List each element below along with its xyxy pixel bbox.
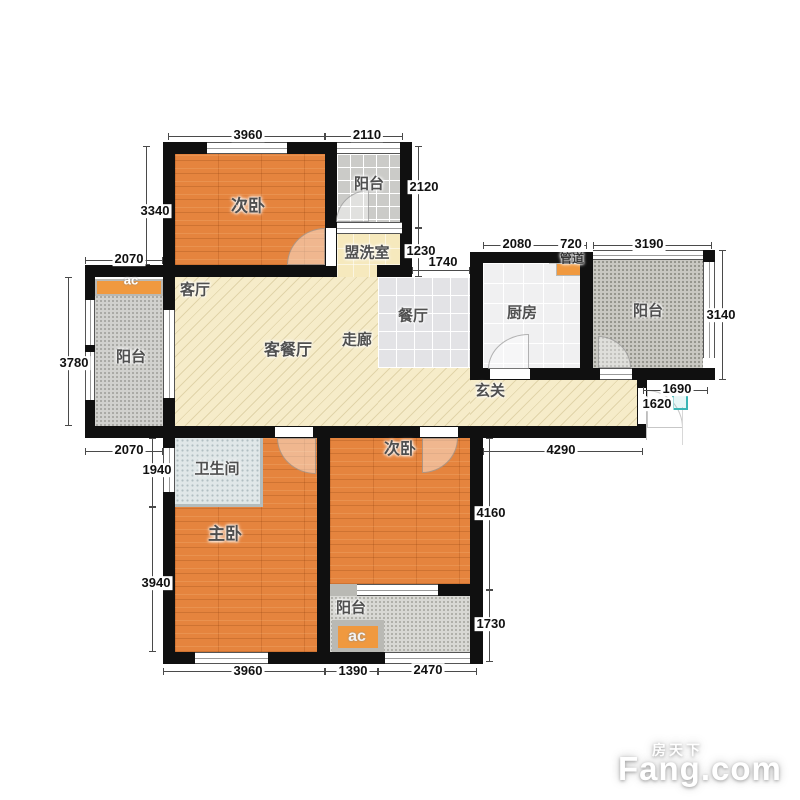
label-balcony-bottom: 阳台	[336, 597, 366, 618]
label-kitchen: 厨房	[507, 302, 537, 323]
label-living: 客厅	[180, 279, 210, 300]
dim-line	[412, 270, 470, 271]
window	[357, 584, 438, 596]
floor-plan: 3960 2110 3340 2120 1230 1740 2070 3780 …	[0, 0, 800, 800]
window	[207, 142, 287, 154]
extension-line	[682, 407, 683, 445]
dim-balcony-top-width: 2110	[351, 128, 383, 142]
balcony-sliding-door	[163, 310, 175, 398]
dim-entry-width: 1690	[661, 382, 694, 396]
label-dining: 餐厅	[398, 305, 428, 326]
dim-ac-bay-width: 1390	[337, 664, 370, 678]
dim-balcony-top-height: 2120	[408, 180, 441, 194]
label-master: 主卧	[208, 520, 242, 545]
wall	[703, 250, 715, 262]
wall	[317, 438, 330, 652]
dim-balcony-bottom-height: 1730	[475, 617, 508, 631]
dim-balcony-right-width: 3190	[633, 237, 666, 251]
master-door-opening	[275, 427, 313, 437]
dim-balcony-left-height: 3780	[58, 356, 91, 370]
label-ac-top: ac	[124, 273, 138, 288]
label-ac-bottom: ac	[348, 628, 366, 646]
entry-door-marker	[672, 394, 688, 410]
dim-bed2-top-width: 3960	[232, 128, 265, 142]
dim-kitchen-width: 2080	[501, 237, 534, 251]
label-bedroom2-bottom: 次卧	[384, 435, 416, 459]
window	[337, 142, 400, 154]
watermark-brand-en: Fang.com	[618, 750, 782, 788]
bedroom2-bottom-door-opening	[420, 427, 458, 437]
dim-bed2-bottom-height: 4160	[475, 506, 508, 520]
wall	[163, 265, 337, 277]
dim-bathroom-height: 1940	[141, 463, 174, 477]
label-living-dining: 客餐厅	[264, 336, 312, 360]
kitchen-door-opening	[490, 369, 530, 379]
wall	[580, 252, 593, 380]
label-bathroom: 卫生间	[194, 458, 239, 479]
dim-left-bottom-width: 2070	[113, 443, 146, 457]
dim-hall-width: 4290	[545, 443, 578, 457]
window	[337, 222, 402, 234]
label-washroom: 盟洗室	[344, 242, 389, 263]
dim-dining-open-width: 1740	[427, 255, 460, 269]
wall	[85, 426, 175, 438]
dim-balcony-bottom-width: 2470	[412, 663, 445, 677]
label-duct: 管道	[560, 250, 584, 267]
label-bedroom2-top: 次卧	[231, 192, 265, 217]
label-entry: 玄关	[475, 380, 505, 401]
wall	[470, 252, 483, 380]
label-balcony-left: 阳台	[116, 346, 146, 367]
wall	[438, 584, 470, 596]
label-balcony-right: 阳台	[633, 300, 663, 321]
dim-balcony-right-height: 3140	[705, 308, 738, 322]
dim-master-width: 3960	[232, 664, 265, 678]
window	[85, 300, 95, 345]
dim-entry-height: 1620	[641, 397, 674, 411]
window	[593, 250, 703, 260]
wall	[377, 265, 403, 277]
label-corridor: 走廊	[342, 329, 372, 350]
dim-bed2-top-height: 3340	[139, 204, 172, 218]
dim-line	[68, 277, 69, 426]
dim-master-height: 3940	[140, 576, 173, 590]
dim-left-top-width: 2070	[113, 252, 146, 266]
balcony-right-door-opening	[600, 368, 632, 380]
wall	[470, 368, 593, 380]
bedroom2-top-door-opening	[326, 228, 336, 266]
label-balcony-top: 阳台	[354, 173, 384, 194]
